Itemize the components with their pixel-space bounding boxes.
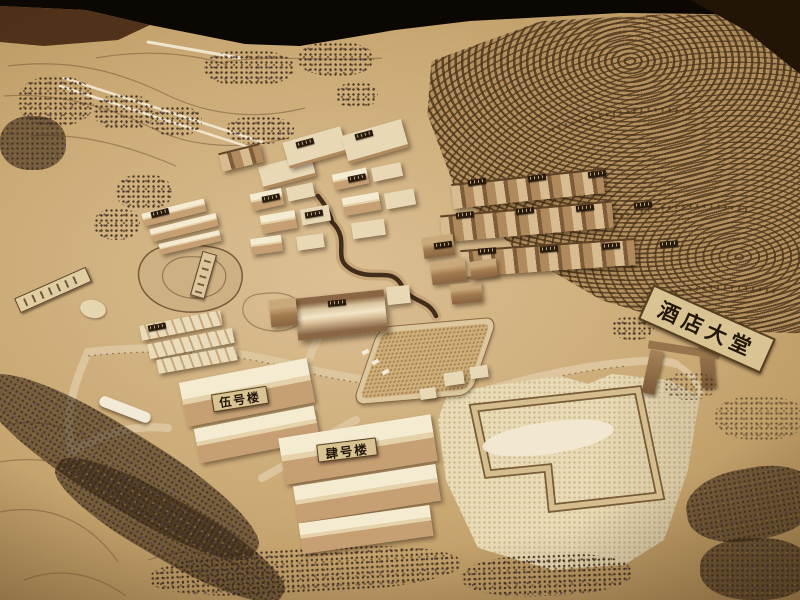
tree-cluster bbox=[116, 174, 172, 210]
gate-arch-mesh bbox=[664, 372, 716, 400]
model-building bbox=[269, 298, 299, 328]
model-building bbox=[469, 365, 488, 379]
tree-cluster-bottom-right bbox=[700, 538, 800, 600]
model-building bbox=[419, 387, 436, 400]
tree-cluster bbox=[150, 106, 202, 136]
scale-model-photo: 酒店大堂 伍号楼 肆号楼 bbox=[0, 0, 800, 600]
model-building bbox=[386, 285, 411, 305]
tree-cluster bbox=[226, 116, 294, 144]
tree-cluster bbox=[94, 208, 140, 240]
tree-cluster bbox=[298, 42, 374, 76]
model-building bbox=[450, 281, 483, 304]
model-building bbox=[469, 258, 498, 280]
tree-cluster bbox=[0, 116, 66, 170]
courtyard-white-patch bbox=[480, 413, 615, 463]
model-building bbox=[443, 371, 465, 387]
tree-cluster bbox=[94, 94, 154, 130]
tree-cluster bbox=[336, 82, 378, 108]
shrub-slope bbox=[714, 396, 800, 440]
tree-cluster bbox=[204, 50, 294, 86]
model-building bbox=[430, 258, 468, 286]
